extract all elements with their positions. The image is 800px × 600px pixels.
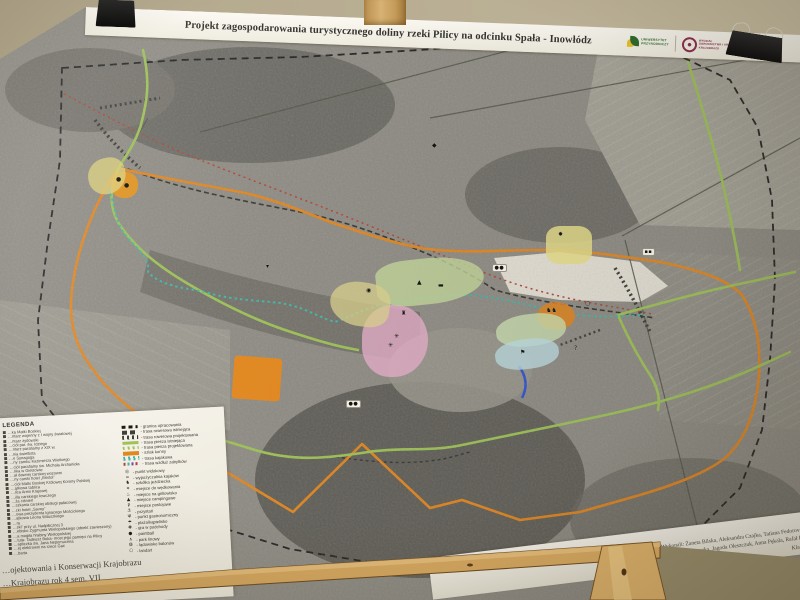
legend-route-symbols: - granica opracowania- trasa rowerowa is… [121, 420, 222, 467]
legend-point-symbols: ◎- punkt widokowy≈- wypożyczalnia kajakó… [124, 465, 228, 554]
map-pictogram-icon: ● [116, 177, 121, 183]
clip-body [96, 0, 137, 28]
photo-scene: ▲▬◉♜✳✳●●●●▪▪♞♞✸○?◆⚑●●▾ Projekt zagospoda… [0, 0, 800, 600]
faculty-ring-icon [681, 36, 697, 52]
map-pictogram-icon: ♞♞ [546, 308, 557, 314]
zone-yellow-ne [546, 226, 592, 264]
place-marker-icon [6, 500, 9, 503]
place-marker-icon [8, 534, 11, 537]
map-pictogram-icon: ▾ [266, 264, 269, 270]
zone-orange-field [232, 355, 283, 401]
place-marker-icon [7, 509, 10, 512]
map-pictogram-icon: ●● [492, 264, 507, 272]
map-pictogram-icon: ▬ [438, 283, 444, 289]
place-marker-icon [3, 444, 6, 447]
place-marker-icon [9, 547, 12, 550]
place-marker-icon [8, 530, 11, 533]
legend-places: …ka Matki Boskiej…ntarz wojenny z I wojn… [3, 425, 122, 560]
place-marker-icon [7, 521, 10, 524]
map-pictogram-icon: ✳ [388, 343, 393, 349]
map-pictogram-icon: ? [574, 346, 577, 352]
place-marker-icon [5, 474, 8, 477]
place-marker-icon [4, 453, 7, 456]
map-pictogram-icon: ●● [346, 400, 361, 408]
map-pictogram-icon: ⚑ [520, 350, 525, 356]
place-marker-icon [6, 487, 9, 490]
university-logo: UNIWERSYTET PRZYRODNICZY [627, 36, 669, 50]
binder-clip-left [96, 0, 137, 28]
place-marker-icon [8, 526, 11, 529]
point-symbol-icon: ○ [128, 548, 135, 554]
map-pictogram-icon: ◉ [366, 288, 371, 294]
map-pictogram-icon: ◆ [432, 143, 437, 149]
place-marker-icon [3, 440, 6, 443]
easel-top-post [364, 0, 406, 25]
logo-separator [674, 36, 676, 52]
place-marker-icon [5, 470, 8, 473]
map-pictogram-icon: ✳ [394, 334, 399, 340]
place-marker-icon [4, 457, 7, 460]
place-marker-icon [9, 552, 12, 555]
place-marker-icon [9, 543, 12, 546]
place-marker-icon [6, 504, 9, 507]
place-marker-icon [7, 517, 10, 520]
map-pictogram-icon: ♜ [401, 311, 406, 317]
place-marker-icon [4, 461, 7, 464]
place-marker-icon [7, 513, 10, 516]
map-pictogram-icon: ✸ [558, 232, 563, 238]
place-marker-icon [4, 465, 7, 468]
map-pictogram-icon: ○ [585, 301, 590, 307]
place-marker-icon [6, 496, 9, 499]
map-pictogram-icon: ▪▪ [642, 248, 655, 256]
map-pictogram-icon: ● [124, 183, 129, 189]
place-marker-icon [5, 478, 8, 481]
place-marker-icon [4, 448, 7, 451]
place-marker-icon [6, 491, 9, 494]
place-marker-icon [3, 431, 6, 434]
route-style-swatch [123, 462, 139, 466]
university-name-line2: PRZYRODNICZY [641, 42, 669, 47]
map-pictogram-icon: ▲ [417, 280, 422, 286]
university-leaf-icon [627, 36, 639, 48]
place-marker-icon [5, 483, 8, 486]
place-marker-icon [8, 539, 11, 542]
place-marker-icon [3, 435, 6, 438]
